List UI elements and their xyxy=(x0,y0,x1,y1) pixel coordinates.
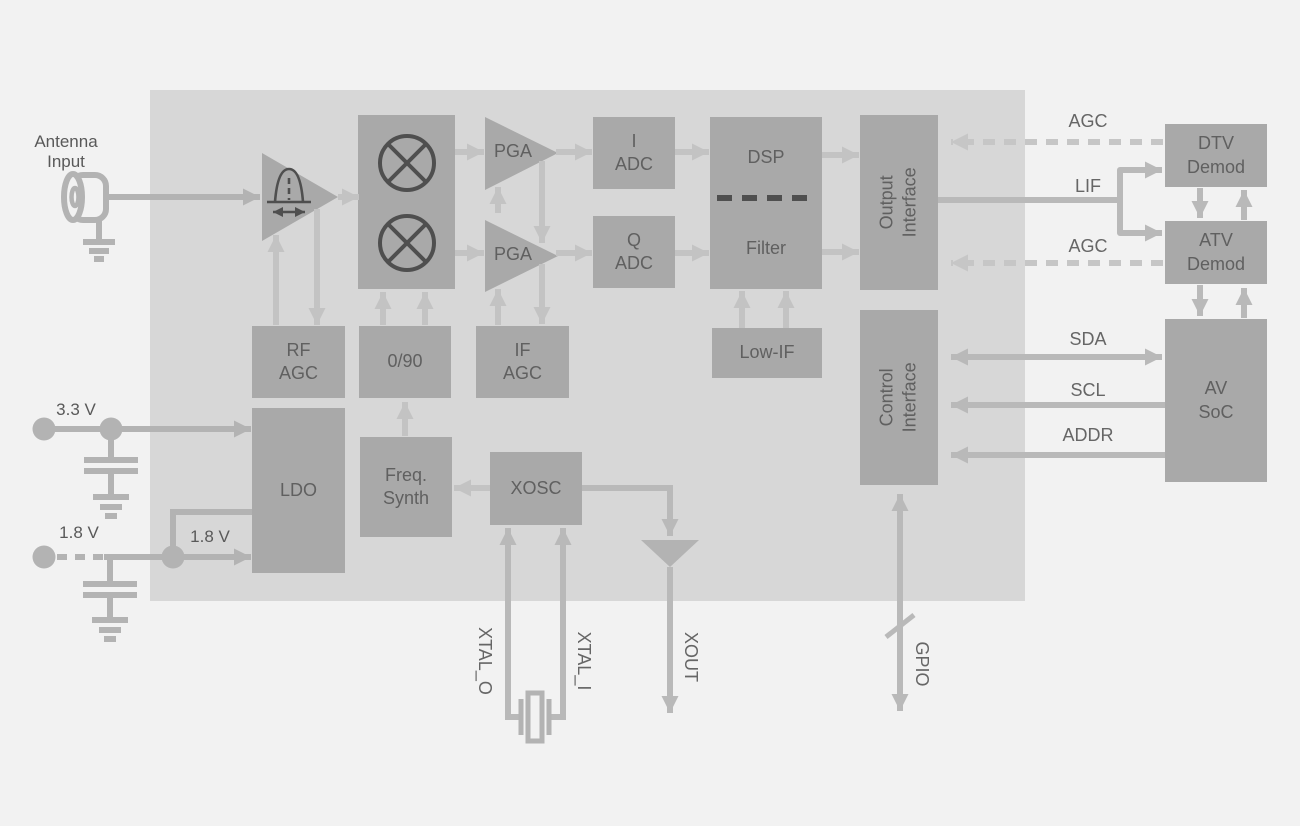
sda-label: SDA xyxy=(1028,329,1148,351)
output-interface-label: Output Interface xyxy=(876,167,923,237)
atv-demod-block: ATV Demod xyxy=(1165,221,1267,284)
ground-icon xyxy=(93,497,129,516)
ldo-block: LDO xyxy=(252,408,345,573)
xosc-block: XOSC xyxy=(490,452,582,525)
control-interface-block: Control Interface xyxy=(860,310,938,485)
xtal-i-label: XTAL_I xyxy=(572,601,594,721)
dsp-filter-block: DSP Filter xyxy=(710,117,822,289)
antenna-ground-icon xyxy=(83,220,115,259)
agc-bottom-label: AGC xyxy=(1028,236,1148,258)
gpio-label: GPIO xyxy=(910,604,932,724)
freq-synth-block: Freq. Synth xyxy=(360,437,452,537)
antenna-coax-connector-icon xyxy=(64,174,106,220)
dtv-demod-block: DTV Demod xyxy=(1165,124,1267,187)
filter-label: Filter xyxy=(710,208,822,289)
ground-icon xyxy=(92,620,128,639)
q-adc-block: Q ADC xyxy=(593,216,675,288)
av-soc-block: AV SoC xyxy=(1165,319,1267,482)
crystal-icon xyxy=(521,693,549,741)
xtal-o-label: XTAL_O xyxy=(473,601,495,721)
mixer-block xyxy=(358,115,455,289)
phase-0-90-block: 0/90 xyxy=(359,326,451,398)
lif-label: LIF xyxy=(1028,176,1148,198)
supply-1v8-external-label: 1.8 V xyxy=(19,522,139,544)
rf-agc-block: RF AGC xyxy=(252,326,345,398)
agc-top-label: AGC xyxy=(1028,111,1148,133)
control-interface-label: Control Interface xyxy=(876,362,923,432)
antenna-input-label: Antenna Input xyxy=(6,130,126,174)
scl-label: SCL xyxy=(1028,380,1148,402)
dsp-label: DSP xyxy=(710,117,822,198)
xout-label: XOUT xyxy=(679,597,701,717)
addr-label: ADDR xyxy=(1028,425,1148,447)
lif-to-atv-wire xyxy=(1120,197,1162,233)
capacitor-icon xyxy=(84,429,138,494)
i-adc-block: I ADC xyxy=(593,117,675,189)
pga-q-label: PGA xyxy=(483,244,543,266)
supply-1v8-internal-label: 1.8 V xyxy=(150,526,270,548)
if-agc-block: IF AGC xyxy=(476,326,569,398)
low-if-block: Low-IF xyxy=(712,328,822,378)
supply-3v3-label: 3.3 V xyxy=(16,399,136,421)
pga-i-label: PGA xyxy=(483,141,543,163)
block-diagram-canvas: RF AGC 0/90 IF AGC LDO Freq. Synth XOSC … xyxy=(0,0,1300,826)
capacitor-icon xyxy=(83,557,137,617)
output-interface-block: Output Interface xyxy=(860,115,938,290)
